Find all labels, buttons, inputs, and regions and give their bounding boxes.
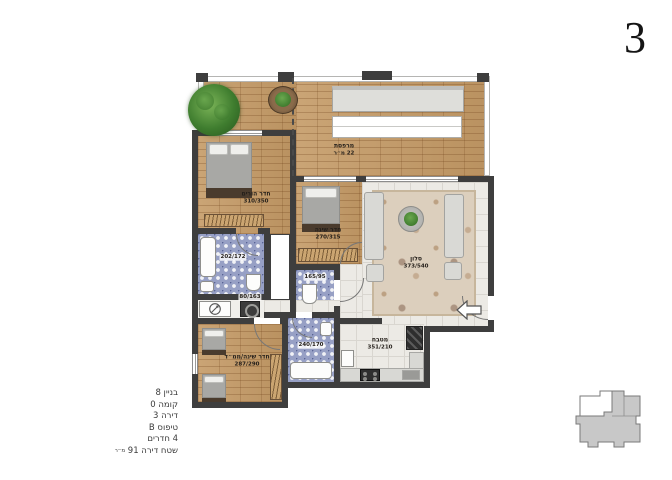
info-line-building: בניין 8	[40, 388, 178, 400]
wall	[334, 318, 340, 382]
bathtub	[200, 237, 216, 277]
room-label-bedroom: חדר שינה 270/315	[315, 228, 342, 241]
railing-post	[196, 73, 208, 82]
room-label-living-room: סלון 373/540	[404, 257, 429, 270]
wall	[282, 382, 430, 388]
wall	[424, 326, 494, 332]
wall	[336, 318, 382, 324]
window	[304, 176, 356, 182]
railing-post	[477, 73, 489, 82]
wall	[264, 228, 270, 300]
highlighted-unit	[580, 391, 612, 416]
planter-plant	[275, 92, 291, 107]
wall	[290, 264, 340, 270]
bed-pillow	[305, 188, 337, 198]
room-label-kitchen: מטבח 351/210	[368, 338, 393, 351]
apartment-info: בניין 8 קומה 0 דירה 3 טיפוס B 4 חדרים שט…	[40, 388, 178, 457]
window	[192, 354, 198, 374]
wall	[282, 312, 288, 408]
sink	[320, 322, 332, 336]
info-line-area: שטח דירה 91 מ״ר	[40, 446, 178, 458]
washing-machine	[240, 301, 260, 317]
room-label-bathroom: 202/172	[220, 254, 247, 261]
room-label-safe-room: חדר שינה/ממ״ד 287/290	[224, 355, 269, 368]
outdoor-table	[332, 116, 462, 138]
kitchen-sink	[341, 350, 354, 367]
service-shaft	[270, 234, 290, 300]
info-line-type: טיפוס B	[40, 423, 178, 435]
bed-pillow	[204, 376, 224, 383]
wall	[488, 176, 494, 296]
room-label-balcony: מרפסת 22 מ״ר	[334, 144, 355, 157]
info-line-rooms: 4 חדרים	[40, 434, 178, 446]
bed-foot	[202, 350, 226, 355]
room-label-toilet: 165/95	[303, 274, 326, 281]
corridor-floor	[264, 300, 340, 312]
wall	[280, 318, 288, 324]
balcony-plant-leaf	[196, 92, 214, 110]
info-line-floor: קומה 0	[40, 400, 178, 412]
fridge	[406, 326, 423, 350]
wall	[424, 326, 430, 388]
balcony-railing	[198, 76, 490, 82]
sheet-number: 3	[624, 12, 646, 63]
wardrobe	[204, 214, 264, 227]
outdoor-bench	[332, 86, 464, 112]
water-heater-symbol	[208, 302, 222, 316]
sink	[200, 281, 214, 292]
wardrobe	[270, 354, 282, 400]
stove	[360, 369, 380, 381]
sofa	[364, 192, 384, 260]
balcony-door-window	[366, 176, 458, 182]
wall	[192, 402, 288, 408]
wall	[192, 228, 236, 234]
room-label-master-bedroom: חדר הורים 310/350	[241, 192, 270, 205]
entry-door-opening	[488, 296, 494, 320]
dishwasher	[402, 370, 420, 380]
armchair	[444, 262, 462, 280]
building-key-plan	[574, 388, 648, 452]
info-line-apartment: דירה 3	[40, 411, 178, 423]
toilet-fixture	[302, 284, 317, 304]
floor-plan-sheet: מרפסת 22 מ״ר חדר הורים 310/350 חדר שינה …	[0, 0, 672, 480]
bed-pillow	[204, 330, 224, 337]
bed-pillow	[209, 144, 228, 155]
balcony-plant-leaf	[214, 104, 230, 120]
entry-arrow-icon	[456, 300, 482, 320]
wall	[334, 306, 340, 312]
wall	[192, 318, 254, 324]
toilet-fixture	[246, 274, 261, 291]
armchair	[366, 264, 384, 282]
bed-pillow	[230, 144, 249, 155]
room-label-laundry: 80/163	[238, 294, 261, 301]
balcony-railing	[484, 76, 490, 176]
sofa	[444, 194, 464, 258]
area-unit: מ״ר	[115, 448, 125, 454]
table-plant	[404, 212, 418, 226]
bathtub	[290, 362, 332, 379]
railing-post	[362, 71, 392, 80]
room-label-bathroom2: 240/170	[298, 342, 325, 349]
